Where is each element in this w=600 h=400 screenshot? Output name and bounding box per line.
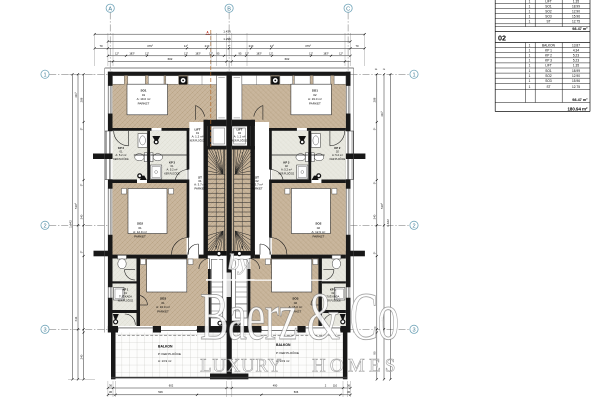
- svg-text:KER.PLOČICE: KER.PLOČICE: [330, 158, 346, 161]
- svg-text:KER.PLOČICE: KER.PLOČICE: [113, 158, 129, 161]
- svg-text:1.642: 1.642: [386, 219, 390, 227]
- svg-text:KER.PLOČICE: KER.PLOČICE: [232, 139, 248, 142]
- svg-text:5.23: 5.23: [573, 54, 579, 58]
- svg-text:KER.PLOČICE: KER.PLOČICE: [164, 172, 180, 175]
- svg-text:36: 36: [375, 69, 378, 71]
- svg-text:602: 602: [285, 57, 290, 61]
- svg-text:288: 288: [79, 97, 83, 102]
- svg-text:KP 3: KP 3: [545, 59, 552, 63]
- svg-text:A: 5.2 m²: A: 5.2 m²: [116, 153, 127, 157]
- svg-text:1835: 1835: [323, 52, 328, 56]
- svg-text:95: 95: [217, 52, 220, 56]
- svg-text:1: 1: [529, 69, 531, 73]
- svg-text:A: 1.2 m²: A: 1.2 m²: [234, 135, 246, 139]
- svg-text:506: 506: [294, 390, 299, 394]
- svg-text:18.99: 18.99: [572, 69, 580, 73]
- svg-text:2: 2: [325, 383, 327, 387]
- svg-text:B: B: [227, 6, 231, 12]
- svg-text:1: 1: [529, 74, 531, 78]
- svg-text:A: 1.2 m²: A: 1.2 m²: [192, 135, 204, 139]
- svg-text:1: 1: [529, 9, 531, 13]
- svg-text:1835: 1835: [195, 52, 200, 56]
- svg-text:98.47 m²: 98.47 m²: [572, 98, 588, 102]
- svg-text:602: 602: [168, 57, 173, 61]
- svg-text:125: 125: [145, 52, 149, 56]
- svg-text:125: 125: [339, 52, 343, 56]
- svg-text:1.642: 1.642: [68, 220, 72, 228]
- svg-text:SO1: SO1: [545, 4, 552, 8]
- svg-text:210: 210: [249, 44, 254, 48]
- svg-text:36: 36: [109, 383, 112, 387]
- svg-text:1835: 1835: [129, 52, 134, 56]
- svg-text:KER.PLOČICE: KER.PLOČICE: [118, 299, 134, 302]
- svg-text:01: 01: [171, 164, 174, 168]
- svg-text:P: KER PLOČICE: P: KER PLOČICE: [158, 351, 181, 356]
- svg-text:A: A: [108, 6, 112, 12]
- svg-text:5.23: 5.23: [573, 59, 579, 63]
- svg-text:5185: 5185: [74, 203, 78, 209]
- svg-text:210: 210: [205, 44, 210, 48]
- svg-text:240: 240: [79, 354, 83, 359]
- svg-text:1: 1: [529, 0, 531, 4]
- svg-text:LIFT: LIFT: [545, 0, 552, 4]
- svg-text:12.90: 12.90: [572, 74, 580, 78]
- svg-text:5185: 5185: [380, 203, 384, 209]
- svg-text:125: 125: [309, 52, 313, 56]
- svg-text:ST: ST: [546, 20, 550, 24]
- svg-text:BALKON: BALKON: [158, 345, 173, 349]
- svg-text:KP 2: KP 2: [118, 146, 124, 150]
- svg-text:340: 340: [373, 214, 377, 219]
- svg-text:1.35: 1.35: [573, 0, 579, 4]
- svg-text:HOMES: HOMES: [312, 356, 401, 377]
- svg-text:02: 02: [498, 33, 506, 42]
- svg-text:PARKET: PARKET: [138, 101, 150, 105]
- svg-text:Baerz & Co: Baerz & Co: [200, 279, 399, 354]
- svg-text:12.90: 12.90: [572, 9, 580, 13]
- svg-text:2: 2: [412, 223, 415, 229]
- svg-text:288: 288: [373, 97, 377, 102]
- svg-text:02: 02: [336, 150, 339, 154]
- svg-text:1: 1: [529, 85, 531, 89]
- svg-text:SO1: SO1: [545, 69, 552, 73]
- svg-text:A: 5.2 m²: A: 5.2 m²: [281, 168, 292, 172]
- svg-text:KP 2: KP 2: [545, 54, 552, 58]
- svg-text:KP 3: KP 3: [283, 161, 289, 165]
- svg-text:1: 1: [529, 54, 531, 58]
- svg-text:490: 490: [273, 383, 278, 387]
- svg-text:by: by: [228, 249, 251, 274]
- svg-text:C: C: [346, 6, 350, 12]
- svg-text:24: 24: [383, 69, 386, 71]
- svg-text:4115: 4115: [74, 92, 78, 98]
- svg-text:55: 55: [373, 182, 377, 185]
- svg-text:SO2: SO2: [545, 74, 552, 78]
- svg-text:125: 125: [184, 44, 188, 48]
- svg-text:12.75: 12.75: [572, 20, 580, 24]
- svg-text:1835: 1835: [256, 52, 261, 56]
- svg-text:KER.PLOČICE: KER.PLOČICE: [190, 139, 206, 142]
- svg-text:3: 3: [43, 327, 46, 333]
- svg-text:506: 506: [158, 390, 163, 394]
- svg-text:02: 02: [285, 164, 288, 168]
- svg-text:PARKET: PARKET: [251, 186, 263, 190]
- svg-text:1.436: 1.436: [223, 30, 231, 34]
- svg-text:KP 1: KP 1: [545, 48, 552, 52]
- svg-text:125: 125: [115, 52, 119, 56]
- svg-text:602: 602: [169, 383, 174, 387]
- svg-text:1: 1: [529, 14, 531, 18]
- svg-text:644: 644: [74, 316, 78, 321]
- svg-text:55: 55: [79, 251, 83, 254]
- svg-text:95: 95: [239, 52, 242, 56]
- svg-text:1: 1: [529, 79, 531, 83]
- svg-text:PARKET: PARKET: [134, 234, 146, 238]
- svg-text:1: 1: [529, 64, 531, 68]
- svg-text:13.87: 13.87: [572, 43, 580, 47]
- svg-text:125: 125: [269, 52, 273, 56]
- svg-text:PARKET: PARKET: [194, 186, 206, 190]
- svg-text:SO3: SO3: [545, 79, 552, 83]
- svg-text:98.47 m²: 98.47 m²: [572, 27, 588, 31]
- svg-text:1: 1: [412, 72, 415, 78]
- svg-text:A: 13.9 m²: A: 13.9 m²: [158, 359, 171, 363]
- svg-text:55: 55: [79, 128, 83, 131]
- svg-text:ST: ST: [546, 85, 550, 89]
- svg-text:1: 1: [529, 4, 531, 8]
- svg-text:1.35: 1.35: [573, 64, 579, 68]
- svg-text:BALKON: BALKON: [542, 43, 556, 47]
- svg-text:1.296: 1.296: [223, 37, 231, 41]
- svg-text:110: 110: [333, 383, 338, 387]
- svg-text:15.96: 15.96: [572, 14, 580, 18]
- svg-text:55: 55: [79, 184, 83, 187]
- svg-text:SO2: SO2: [545, 9, 552, 13]
- svg-text:36: 36: [109, 390, 112, 394]
- svg-text:A: 5.2 m²: A: 5.2 m²: [332, 153, 343, 157]
- svg-text:PARKET: PARKET: [309, 101, 321, 105]
- svg-text:125: 125: [184, 52, 188, 56]
- svg-text:PARKET: PARKET: [313, 234, 325, 238]
- svg-text:LUXURY: LUXURY: [200, 355, 287, 376]
- svg-text:PARKET: PARKET: [157, 309, 169, 313]
- svg-text:1: 1: [529, 59, 531, 63]
- svg-text:3: 3: [412, 327, 415, 333]
- svg-text:1: 1: [529, 20, 531, 24]
- svg-text:A: A: [206, 31, 209, 35]
- svg-text:A: 5.2 m²: A: 5.2 m²: [167, 168, 178, 172]
- svg-text:4.34: 4.34: [573, 48, 579, 52]
- svg-text:70: 70: [355, 44, 359, 48]
- svg-text:70: 70: [99, 44, 103, 48]
- svg-text:KP 3: KP 3: [169, 161, 175, 165]
- svg-text:3795: 3795: [305, 44, 311, 48]
- svg-text:55: 55: [373, 128, 377, 131]
- svg-text:1: 1: [43, 72, 46, 78]
- svg-text:2: 2: [43, 223, 46, 229]
- svg-text:KP 1: KP 1: [123, 288, 129, 292]
- svg-text:12.75: 12.75: [572, 85, 580, 89]
- svg-text:4115: 4115: [380, 111, 384, 117]
- svg-text:18.99: 18.99: [572, 4, 580, 8]
- svg-text:KER.PLOČICE: KER.PLOČICE: [279, 172, 295, 175]
- svg-text:01: 01: [120, 150, 123, 154]
- svg-text:3795: 3795: [147, 44, 153, 48]
- svg-text:KP 2: KP 2: [334, 146, 340, 150]
- svg-text:SO3: SO3: [545, 14, 552, 18]
- svg-text:15.96: 15.96: [572, 79, 580, 83]
- svg-text:180.94 m²: 180.94 m²: [567, 106, 588, 111]
- svg-text:LIFT: LIFT: [545, 64, 552, 68]
- svg-text:1: 1: [529, 48, 531, 52]
- svg-text:1: 1: [529, 43, 531, 47]
- svg-text:55: 55: [373, 252, 377, 255]
- svg-text:340: 340: [79, 214, 83, 219]
